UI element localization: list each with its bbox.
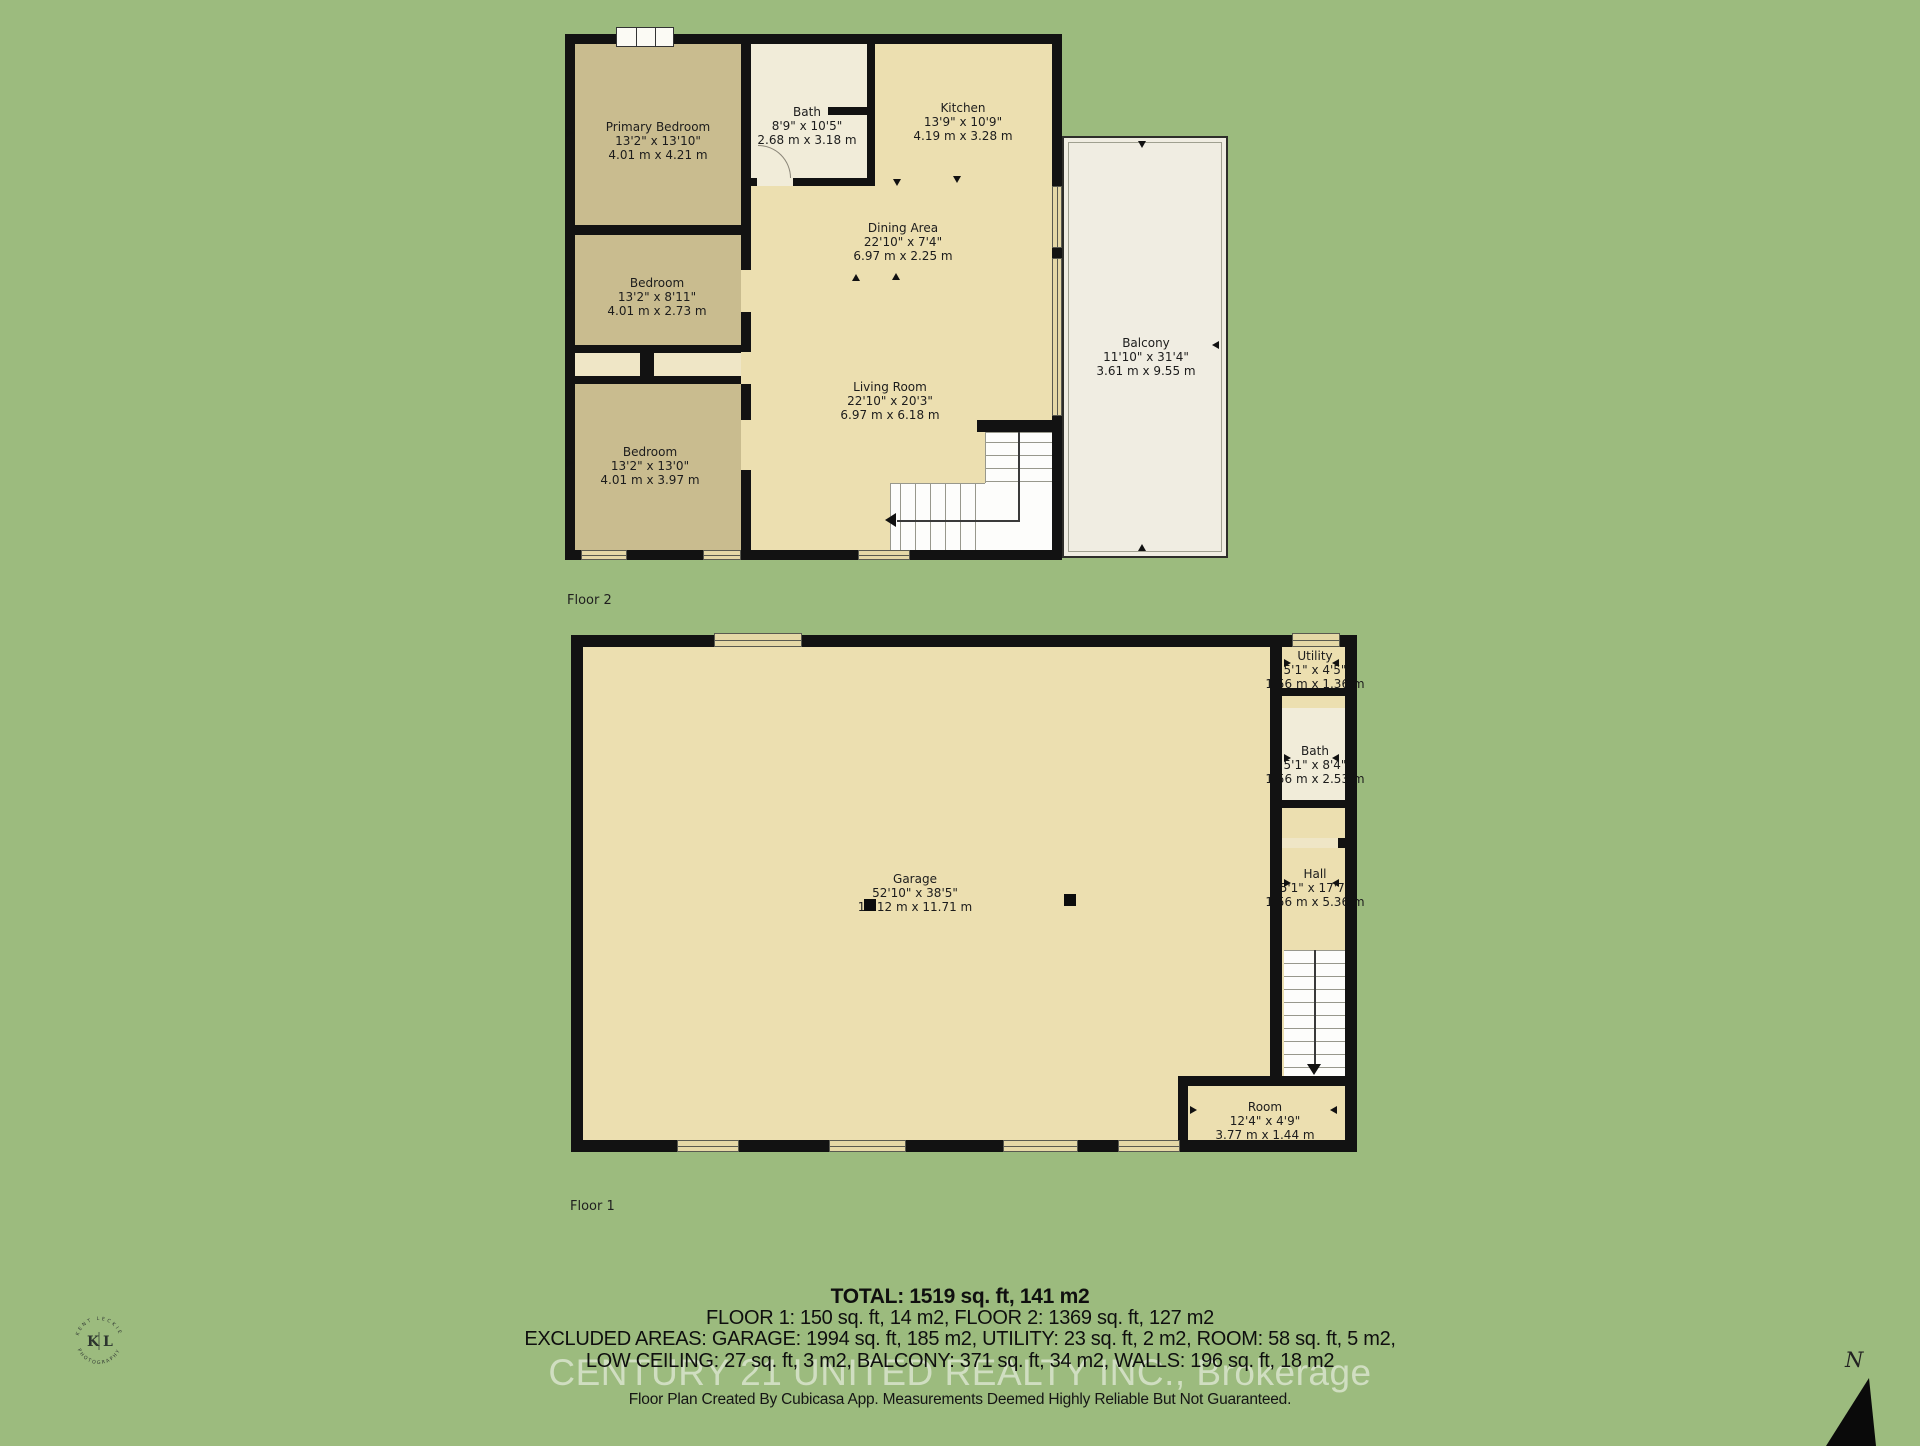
room-name: Balcony — [1096, 337, 1195, 351]
stair-tread — [960, 483, 961, 550]
dimension-tick — [892, 273, 900, 280]
photographer-logo: KENT LECKIE PHOTOGRAPHY K L — [70, 1312, 128, 1370]
dimension-tick — [1284, 659, 1291, 667]
wall — [741, 178, 757, 186]
dimension-tick — [1332, 754, 1339, 762]
stair-arrow-left — [885, 513, 896, 527]
dimension-tick — [1284, 754, 1291, 762]
floor2-caption: Floor 2 — [567, 593, 612, 608]
window — [1052, 258, 1062, 416]
wall — [1338, 838, 1357, 848]
room-dims-imperial: 13'2" x 8'11" — [607, 291, 706, 305]
wall — [1270, 688, 1357, 696]
wall — [1178, 1076, 1357, 1086]
dimension-tick — [953, 176, 961, 183]
logo-letter-l: L — [103, 1334, 113, 1350]
stair-arrow-down — [1307, 1064, 1321, 1075]
stair-tread — [975, 483, 976, 550]
logo-bottom-arc: PHOTOGRAPHY — [76, 1348, 122, 1366]
window — [677, 1140, 739, 1152]
wall — [1178, 1076, 1188, 1150]
window — [581, 550, 627, 560]
dimension-tick — [1190, 1106, 1197, 1114]
room-label-bedroom-bottom: Bedroom 13'2" x 13'0" 4.01 m x 3.97 m — [600, 446, 699, 488]
disclaimer-text: Floor Plan Created By Cubicasa App. Meas… — [0, 1391, 1920, 1409]
window-mullion — [859, 555, 909, 556]
room-name: Primary Bedroom — [606, 121, 710, 135]
dimension-tick — [1330, 1106, 1337, 1114]
summary-block: TOTAL: 1519 sq. ft, 141 m2 FLOOR 1: 150 … — [0, 1286, 1920, 1372]
window — [1292, 633, 1340, 647]
room-dims-metric: 6.97 m x 6.18 m — [840, 409, 939, 423]
window — [1003, 1140, 1078, 1152]
stair-walk-line — [1314, 950, 1316, 1070]
summary-floors: FLOOR 1: 150 sq. ft, 14 m2, FLOOR 2: 136… — [0, 1308, 1920, 1330]
dimension-tick — [1138, 141, 1146, 148]
wall — [565, 34, 575, 560]
room-name: Bedroom — [607, 277, 706, 291]
dimension-tick — [893, 179, 901, 186]
wall — [741, 384, 751, 420]
wall — [977, 420, 1062, 432]
wall — [575, 225, 741, 235]
wall — [571, 635, 1357, 647]
wall — [1270, 800, 1357, 808]
window-mullion — [1057, 187, 1058, 247]
dimension-tick — [1284, 879, 1291, 887]
stair-tread — [890, 483, 985, 484]
room-name: Garage — [858, 873, 972, 887]
wall — [1270, 635, 1282, 1086]
wall — [575, 345, 741, 353]
summary-excluded-1: EXCLUDED AREAS: GARAGE: 1994 sq. ft, 185… — [0, 1329, 1920, 1351]
room-dims-imperial: 8'9" x 10'5" — [757, 120, 856, 134]
stair-tread — [985, 432, 986, 483]
wall — [741, 44, 751, 270]
room-label-living-room: Living Room 22'10" x 20'3" 6.97 m x 6.18… — [840, 381, 939, 423]
room-dims-imperial: 22'10" x 20'3" — [840, 395, 939, 409]
wall — [1345, 635, 1357, 1152]
room-dims-imperial: 13'2" x 13'10" — [606, 135, 710, 149]
wall — [793, 178, 875, 186]
room-label-room: Room 12'4" x 4'9" 3.77 m x 1.44 m — [1215, 1101, 1314, 1143]
window — [1118, 1140, 1180, 1152]
summary-total: TOTAL: 1519 sq. ft, 141 m2 — [0, 1286, 1920, 1308]
room-label-bedroom-middle: Bedroom 13'2" x 8'11" 4.01 m x 2.73 m — [607, 277, 706, 319]
dimension-tick — [566, 289, 573, 297]
window — [714, 633, 802, 647]
room-dims-metric: 4.19 m x 3.28 m — [913, 130, 1012, 144]
compass-north-label: N — [1845, 1348, 1863, 1372]
room-dims-imperial: 13'9" x 10'9" — [913, 116, 1012, 130]
floor1-caption: Floor 1 — [570, 1199, 615, 1214]
room-dims-metric: 4.01 m x 2.73 m — [607, 305, 706, 319]
floor-plan-image: Primary Bedroom 13'2" x 13'10" 4.01 m x … — [0, 0, 1920, 1440]
room-name: Bedroom — [600, 446, 699, 460]
dimension-tick — [1212, 341, 1219, 349]
stair-tread — [900, 483, 901, 550]
f2-bath-door-gap — [757, 178, 793, 186]
wall — [575, 376, 741, 384]
room-label-balcony: Balcony 11'10" x 31'4" 3.61 m x 9.55 m — [1096, 337, 1195, 379]
room-dims-imperial: 22'10" x 7'4" — [853, 236, 952, 250]
wall — [828, 107, 867, 115]
wall — [571, 635, 583, 1152]
room-name: Dining Area — [853, 222, 952, 236]
room-dims-metric: 4.01 m x 3.97 m — [600, 474, 699, 488]
summary-excluded-2: LOW CEILING: 27 sq. ft, 3 m2, BALCONY: 3… — [0, 1351, 1920, 1373]
logo-letter-k: K — [87, 1334, 100, 1350]
dimension-tick — [566, 459, 573, 467]
stair-walk-line — [1018, 432, 1020, 522]
window — [858, 550, 910, 560]
window — [703, 550, 741, 560]
window-mullion — [715, 640, 801, 641]
window — [829, 1140, 906, 1152]
garage-column — [1064, 894, 1076, 906]
f2-hallway-floor — [575, 352, 741, 376]
room-label-primary-bedroom: Primary Bedroom 13'2" x 13'10" 4.01 m x … — [606, 121, 710, 163]
window-mullion — [655, 28, 656, 46]
room-dims-metric: 2.68 m x 3.18 m — [757, 134, 856, 148]
f2-stairs-lower — [890, 483, 985, 550]
window-mullion — [1293, 640, 1339, 641]
window-mullion — [582, 555, 626, 556]
wall — [565, 550, 1062, 560]
room-dims-imperial: 13'2" x 13'0" — [600, 460, 699, 474]
window-mullion — [1004, 1146, 1077, 1147]
stair-walk-line — [897, 520, 1019, 522]
window-mullion — [1057, 259, 1058, 415]
room-dims-imperial: 12'4" x 4'9" — [1215, 1115, 1314, 1129]
f1-hall-door-gap — [1282, 838, 1338, 848]
stair-tread — [915, 483, 916, 550]
dimension-tick — [566, 129, 573, 137]
wall — [741, 312, 751, 352]
stair-tread — [930, 483, 931, 550]
room-dims-metric: 3.61 m x 9.55 m — [1096, 365, 1195, 379]
dimension-tick — [852, 274, 860, 281]
window-mullion — [830, 1146, 905, 1147]
room-label-kitchen: Kitchen 13'9" x 10'9" 4.19 m x 3.28 m — [913, 102, 1012, 144]
window-mullion — [1119, 1146, 1179, 1147]
window-mullion — [678, 1146, 738, 1147]
dimension-tick — [1138, 544, 1146, 551]
wall — [741, 470, 751, 550]
window — [1052, 186, 1062, 248]
room-label-dining-area: Dining Area 22'10" x 7'4" 6.97 m x 2.25 … — [853, 222, 952, 264]
room-dims-imperial: 11'10" x 31'4" — [1096, 351, 1195, 365]
room-name: Living Room — [840, 381, 939, 395]
room-name: Room — [1215, 1101, 1314, 1115]
wall — [640, 345, 654, 384]
stair-tread — [945, 483, 946, 550]
wall — [867, 34, 875, 186]
room-dims-metric: 6.97 m x 2.25 m — [853, 250, 952, 264]
window — [616, 27, 674, 47]
dimension-tick — [1332, 879, 1339, 887]
garage-column — [864, 899, 876, 911]
window-mullion — [636, 28, 637, 46]
dimension-tick — [1332, 659, 1339, 667]
window-mullion — [704, 555, 740, 556]
svg-text:PHOTOGRAPHY: PHOTOGRAPHY — [76, 1348, 122, 1366]
room-name: Kitchen — [913, 102, 1012, 116]
room-dims-metric: 4.01 m x 4.21 m — [606, 149, 710, 163]
